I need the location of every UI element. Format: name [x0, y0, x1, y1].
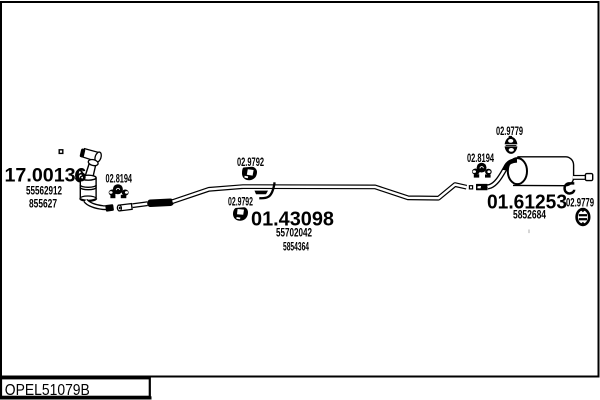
svg-text:02.9779: 02.9779 — [566, 195, 594, 209]
svg-text:5852684: 5852684 — [513, 207, 546, 221]
svg-text:02.9792: 02.9792 — [237, 155, 264, 169]
svg-text:02.8194: 02.8194 — [467, 151, 494, 165]
svg-text:02.9792: 02.9792 — [228, 194, 253, 208]
svg-text:5854364: 5854364 — [283, 239, 309, 253]
svg-text:OPEL51079B: OPEL51079B — [5, 382, 90, 399]
svg-text:55702042: 55702042 — [276, 226, 312, 240]
svg-text:02.8194: 02.8194 — [106, 171, 133, 185]
svg-text:55562912: 55562912 — [26, 183, 62, 197]
svg-text:855627: 855627 — [29, 196, 57, 210]
